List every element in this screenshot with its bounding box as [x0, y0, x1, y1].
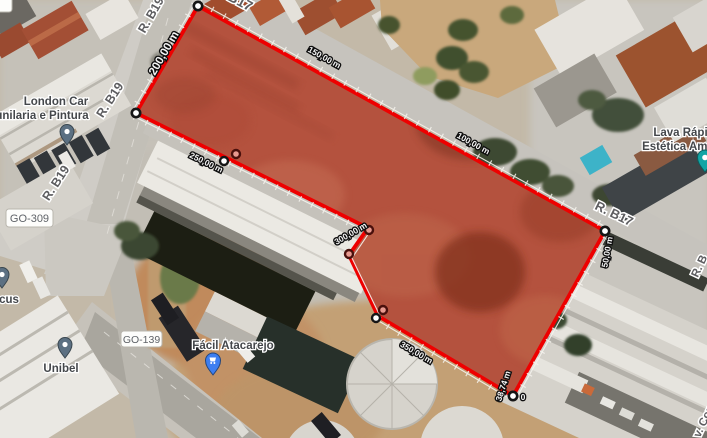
svg-text:Lava Rápid: Lava Rápid	[653, 127, 707, 139]
svg-text:Unibel: Unibel	[43, 363, 78, 375]
svg-text:cus: cus	[0, 294, 19, 306]
svg-text:London Car: London Car	[24, 96, 89, 108]
svg-text:0: 0	[521, 392, 526, 402]
svg-text:GO-139: GO-139	[123, 334, 161, 346]
svg-text:Estética Amé: Estética Amé	[642, 141, 707, 153]
svg-text:unilaria e Pintura: unilaria e Pintura	[0, 110, 89, 122]
svg-text:Fácil Atacarejo: Fácil Atacarejo	[192, 340, 273, 352]
svg-text:GO-309: GO-309	[10, 213, 49, 225]
